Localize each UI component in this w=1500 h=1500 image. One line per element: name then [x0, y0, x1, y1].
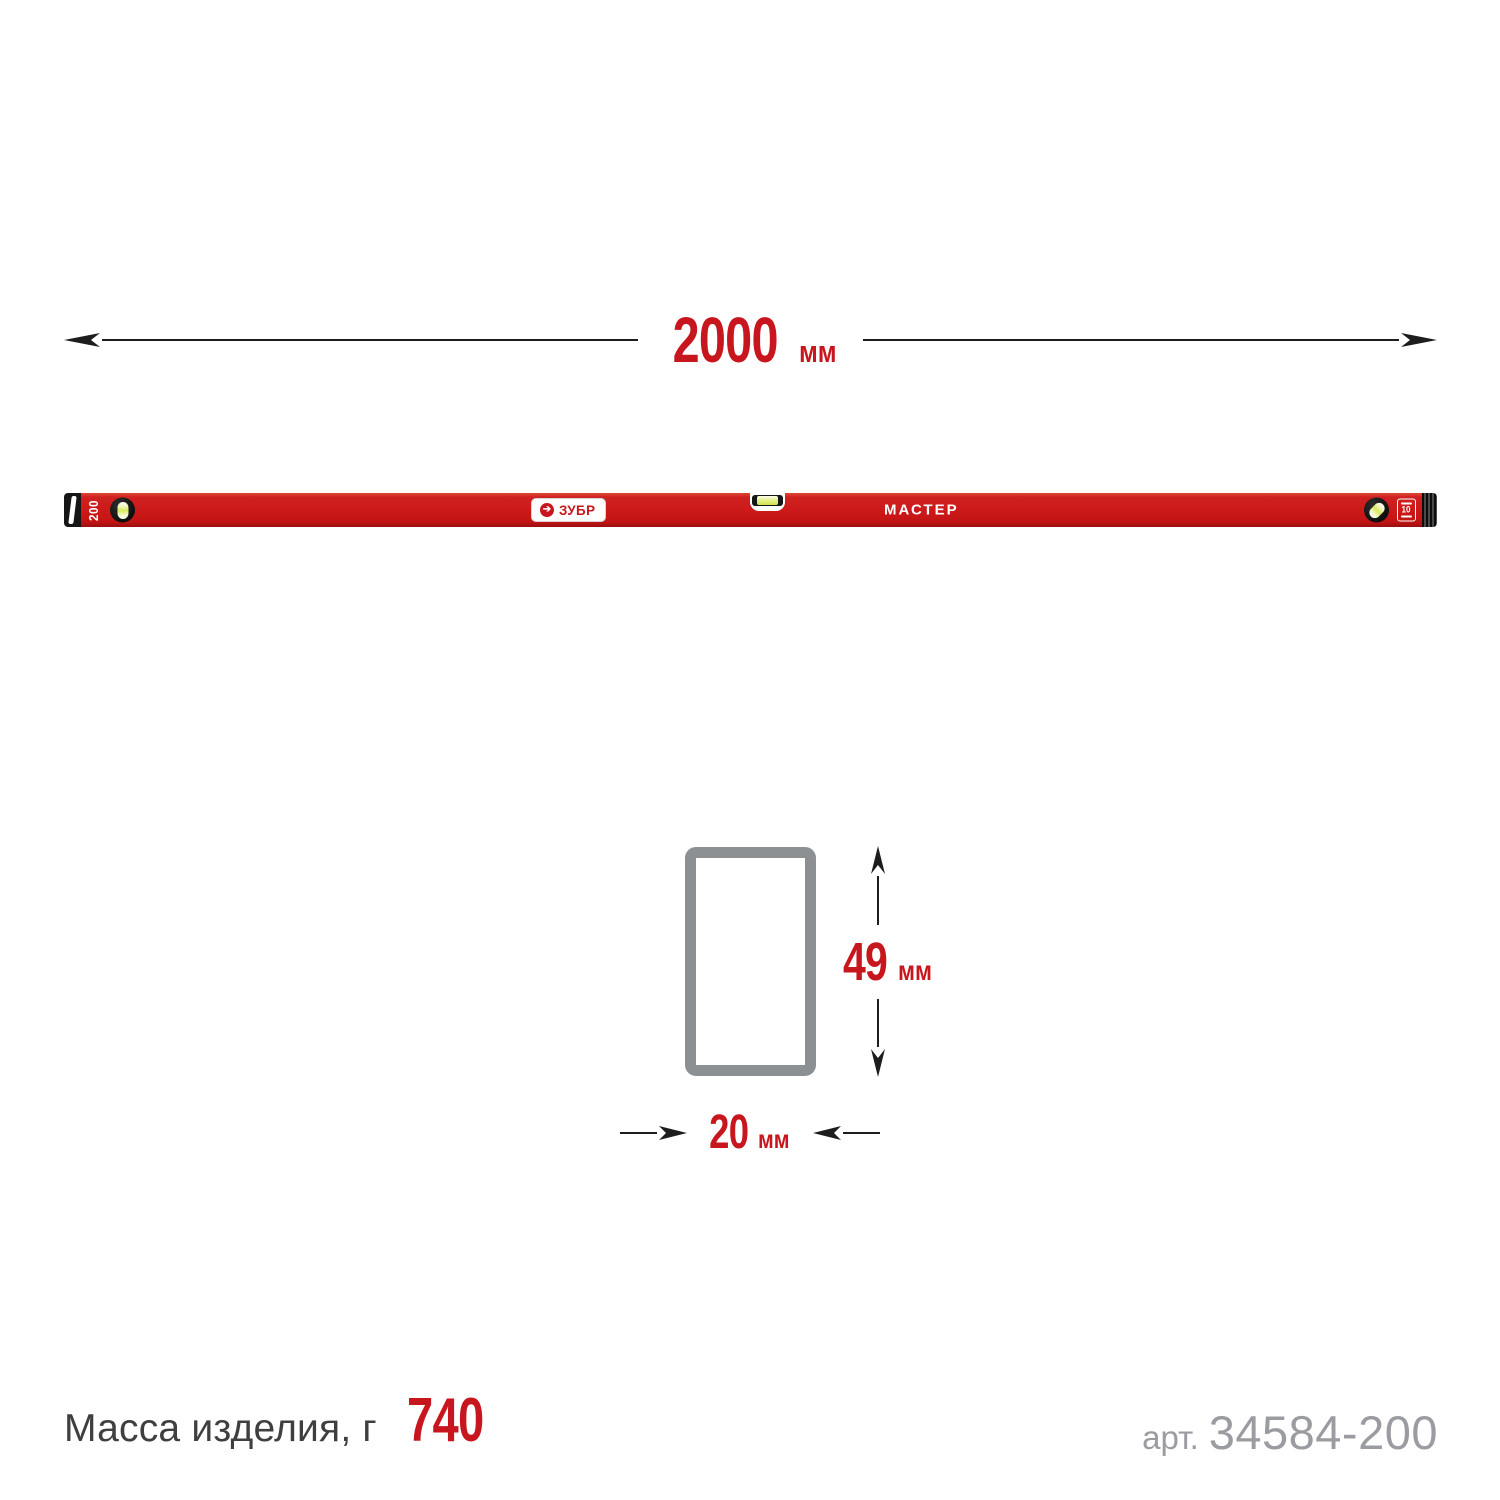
angle-vial-icon	[1364, 498, 1389, 523]
vertical-vial-icon	[110, 498, 135, 523]
badge-decor-bottom	[1401, 516, 1412, 518]
sku-info: арт. 34584-200	[1142, 1405, 1438, 1460]
width-dimension: 20 мм	[620, 1110, 880, 1156]
brand-arrow-icon: ➔	[540, 503, 554, 517]
mass-info: Масса изделия, г 740	[64, 1390, 495, 1452]
width-value: 20	[709, 1109, 748, 1157]
brand-name: ЗУБР	[559, 502, 595, 518]
height-dimension: 49 мм	[818, 846, 938, 1077]
dimension-line	[877, 876, 879, 925]
series-name: МАСТЕР	[884, 502, 959, 519]
height-dimension-label: 49 мм	[836, 935, 940, 989]
product-dimension-diagram: 2000 мм 200 ➔ ЗУБР МАСТ	[0, 0, 1500, 1500]
level-left-end-cap	[64, 493, 81, 527]
width-unit: мм	[758, 1126, 790, 1152]
level-body: 200 ➔ ЗУБР МАСТЕР 10	[81, 493, 1422, 527]
dimension-line	[620, 1132, 657, 1134]
end-cap-slot	[68, 496, 76, 524]
vial-bubble	[1367, 500, 1387, 520]
sku-label: арт.	[1142, 1419, 1199, 1457]
level-size-marking: 200	[83, 493, 105, 527]
dimension-line	[863, 339, 1399, 341]
mass-label: Масса изделия, г	[64, 1407, 377, 1451]
vial-window	[757, 496, 778, 505]
level-right-end-cap	[1422, 493, 1437, 527]
profile-cross-section	[685, 847, 816, 1076]
arrow-down-icon	[870, 1047, 886, 1077]
vial-bubble	[117, 502, 128, 519]
dimension-line	[102, 339, 638, 341]
horizontal-vial-notch	[750, 493, 785, 511]
arrow-left-icon	[64, 332, 102, 348]
warranty-years: 10	[1402, 506, 1411, 515]
mass-value: 740	[407, 1390, 483, 1452]
width-dimension-label: 20 мм	[687, 1109, 813, 1157]
dimension-line	[843, 1132, 880, 1134]
dimension-line	[877, 999, 879, 1048]
length-dimension-label: 2000 мм	[638, 308, 862, 372]
warranty-badge: 10	[1397, 499, 1416, 522]
spirit-level: 200 ➔ ЗУБР МАСТЕР 10	[64, 493, 1437, 527]
length-unit: мм	[799, 336, 837, 367]
horizontal-vial-icon	[752, 495, 783, 506]
sku-value: 34584-200	[1209, 1405, 1438, 1460]
arrow-right-icon	[657, 1125, 687, 1141]
height-unit: мм	[898, 957, 932, 985]
brand-logo: ➔ ЗУБР	[532, 499, 605, 521]
arrow-left-icon	[813, 1125, 843, 1141]
height-value: 49	[843, 935, 887, 989]
arrow-up-icon	[870, 846, 886, 876]
length-value: 2000	[673, 308, 778, 372]
length-dimension: 2000 мм	[64, 312, 1437, 368]
arrow-right-icon	[1399, 332, 1437, 348]
